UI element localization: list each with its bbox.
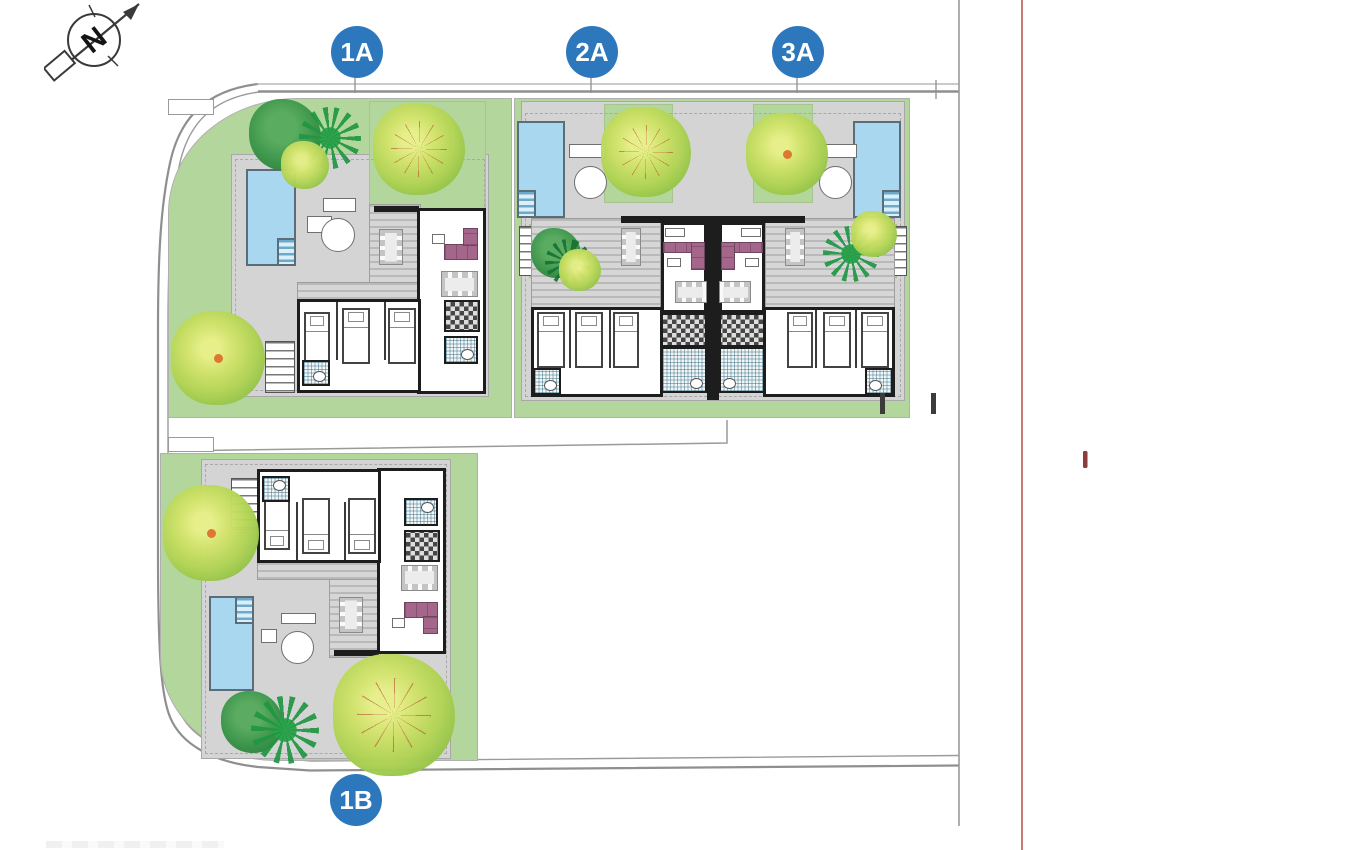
driveway-boundary-line xyxy=(169,420,727,451)
bathroom xyxy=(719,347,765,393)
coffee-table xyxy=(745,258,759,267)
coffee-table xyxy=(665,228,685,237)
swimming-pool xyxy=(209,596,254,691)
sofa xyxy=(423,616,438,634)
north-label: N xyxy=(76,21,113,60)
bed xyxy=(302,498,330,554)
bathroom xyxy=(404,498,438,526)
kitchen xyxy=(719,313,765,347)
interior-wall xyxy=(344,502,346,560)
interior-wall xyxy=(855,310,857,368)
plot-1A xyxy=(168,98,512,418)
interior-wall xyxy=(569,310,571,368)
driveway-entry xyxy=(168,99,214,115)
pool-steps xyxy=(519,190,536,216)
garden-tree xyxy=(373,103,465,195)
garden-tree xyxy=(171,311,265,405)
bathroom xyxy=(262,476,290,502)
bed xyxy=(304,312,330,366)
bathroom xyxy=(302,360,330,386)
bathroom xyxy=(444,336,478,364)
round-table xyxy=(574,166,607,199)
dining-table xyxy=(675,281,707,303)
bathroom xyxy=(865,368,893,395)
garden-tree xyxy=(163,485,259,581)
north-compass: N xyxy=(44,0,148,84)
coffee-table xyxy=(432,234,445,244)
bathroom xyxy=(661,347,707,393)
dining-table xyxy=(401,565,438,591)
unit-badge-1B[interactable]: 1B xyxy=(330,774,382,826)
bed xyxy=(575,312,603,368)
fence-post xyxy=(880,393,885,414)
interior-wall xyxy=(384,302,386,360)
cropped-watermark xyxy=(46,841,224,848)
garden-tree xyxy=(559,249,601,291)
site-plan-canvas: N xyxy=(0,0,1360,850)
boundary-tick-marks xyxy=(355,78,936,99)
sofa xyxy=(691,242,705,270)
north-arrow-icon: N xyxy=(44,0,148,84)
bed xyxy=(861,312,889,368)
bed xyxy=(388,308,416,364)
kitchen xyxy=(661,313,707,347)
plot-1B xyxy=(160,453,478,761)
pool-steps xyxy=(277,238,294,264)
bed xyxy=(823,312,851,368)
swimming-pool xyxy=(517,121,565,218)
deck-terrace xyxy=(257,561,381,580)
sofa xyxy=(463,228,478,246)
villa-house-1A xyxy=(294,196,486,399)
swimming-pool xyxy=(853,121,901,218)
garden-tree xyxy=(746,113,828,195)
unit-badge-3A[interactable]: 3A xyxy=(772,26,824,78)
pool-steps xyxy=(235,598,252,624)
outdoor-dining-table xyxy=(621,228,641,266)
kitchen xyxy=(444,300,480,332)
interior-wall xyxy=(296,502,298,560)
bed xyxy=(537,312,565,368)
kitchen xyxy=(404,530,440,562)
exterior-wall xyxy=(374,206,419,212)
unit-badge-2A[interactable]: 2A xyxy=(566,26,618,78)
unit-badge-1A[interactable]: 1A xyxy=(331,26,383,78)
outdoor-dining-table xyxy=(339,597,363,633)
coffee-table xyxy=(741,228,761,237)
dining-table xyxy=(441,271,478,297)
sofa xyxy=(444,244,478,260)
pool-steps xyxy=(882,190,899,216)
bed xyxy=(787,312,813,368)
bathroom xyxy=(533,368,561,395)
interior-wall xyxy=(609,310,611,368)
garden-tree xyxy=(281,141,329,189)
fence-post xyxy=(931,393,936,414)
outdoor-dining-table xyxy=(785,228,805,266)
compass-arrowhead xyxy=(123,4,139,20)
garden-tree xyxy=(333,654,455,776)
bed xyxy=(348,498,376,554)
sofa xyxy=(721,242,735,270)
exterior-stairs xyxy=(265,341,295,393)
interior-wall xyxy=(336,302,338,360)
driveway-entry xyxy=(168,437,214,452)
dining-table xyxy=(719,281,751,303)
interior-wall xyxy=(815,310,817,368)
red-marker-tick xyxy=(1083,451,1088,468)
palm-tree xyxy=(251,696,319,764)
bed xyxy=(264,496,290,550)
outdoor-dining-table xyxy=(379,229,403,265)
coffee-table xyxy=(667,258,681,267)
compass-tail xyxy=(44,51,75,81)
villa-house-1B xyxy=(254,463,446,666)
garden-tree xyxy=(851,211,897,257)
bed xyxy=(342,308,370,364)
coffee-table xyxy=(392,618,405,628)
bed xyxy=(613,312,639,368)
garden-tree xyxy=(601,107,691,197)
plot-2A-3A xyxy=(514,98,910,418)
